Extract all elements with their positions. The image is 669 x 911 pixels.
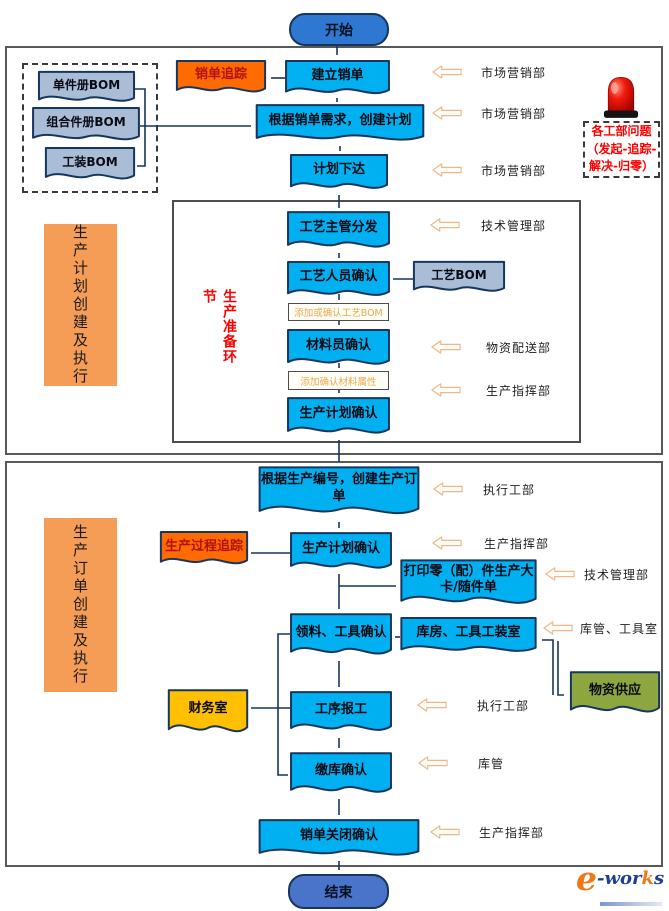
node-sales-order-tracking: 销单追踪 bbox=[176, 60, 266, 98]
node-pick-confirm: 领料、工具确认 bbox=[290, 613, 392, 662]
logo-text: s bbox=[654, 868, 664, 889]
issue-note-line: 各工部问题 bbox=[591, 123, 651, 140]
dept-label-storekeeper-toolroom: 库管、工具室 bbox=[580, 620, 658, 637]
node-craft-dispatch: 工艺主管分发 bbox=[287, 211, 390, 254]
prep-phase-label: 生产准备环节 bbox=[206, 289, 232, 373]
logo-letter-e: e bbox=[576, 859, 597, 898]
node-bom-tooling: 工装BOM bbox=[45, 147, 135, 185]
band-plan-phase-label: 生产计划创建及执行 bbox=[70, 224, 91, 386]
dept-label-tech-mgmt-2: 技术管理部 bbox=[584, 566, 649, 583]
dept-arrow-icon bbox=[432, 65, 462, 79]
dept-arrow-icon bbox=[418, 756, 448, 770]
dept-label-marketing-1: 市场营销部 bbox=[481, 64, 546, 81]
dept-label-prod-command-2: 生产指挥部 bbox=[484, 535, 549, 552]
dept-label-prod-command-3: 生产指挥部 bbox=[479, 824, 544, 841]
node-close-confirm: 销单关闭确认 bbox=[258, 819, 420, 862]
dept-arrow-icon bbox=[545, 567, 575, 581]
dept-label-storekeeper: 库管 bbox=[478, 755, 504, 772]
logo-text: -wor bbox=[597, 868, 641, 889]
node-create-prod-order: 根据生产编号，创建生产订单 bbox=[258, 466, 420, 523]
node-bom-single: 单件册BOM bbox=[38, 71, 135, 107]
node-bom-combo: 组合件册BOM bbox=[32, 107, 140, 146]
band-order-phase: 生产订单创建及执行 bbox=[44, 518, 117, 692]
dept-arrow-icon bbox=[417, 698, 447, 712]
flowchart-canvas: 开始 结束 生产计划创建及执行 生产订单创建及执行 生产准备环节 销单追踪 建立… bbox=[0, 0, 669, 911]
eworks-logo: e-works bbox=[576, 866, 664, 906]
dept-label-material-delivery: 物资配送部 bbox=[486, 339, 551, 356]
dept-arrow-icon bbox=[432, 163, 462, 177]
issue-note-line: （发起-追踪- bbox=[587, 141, 657, 158]
dept-label-marketing-2: 市场营销部 bbox=[481, 105, 546, 122]
alarm-icon bbox=[598, 72, 644, 119]
node-craft-confirm: 工艺人员确认 bbox=[287, 261, 390, 302]
node-create-sales-order: 建立销单 bbox=[285, 60, 390, 100]
end-node: 结束 bbox=[288, 874, 389, 909]
dept-arrow-icon bbox=[431, 383, 461, 397]
band-order-phase-label: 生产订单创建及执行 bbox=[70, 524, 91, 686]
node-plan-confirm: 生产计划确认 bbox=[287, 397, 390, 440]
issue-note-box: 各工部问题 （发起-追踪- 解决-归零） bbox=[583, 121, 660, 178]
node-stockin-confirm: 缴库确认 bbox=[290, 752, 392, 800]
dept-arrow-icon bbox=[430, 825, 460, 839]
node-supply: 物资供应 bbox=[570, 671, 660, 720]
node-print-card: 打印零（配）件生产大卡/随件单 bbox=[400, 559, 537, 612]
node-prod-plan-confirm: 生产计划确认 bbox=[290, 532, 392, 575]
node-process-tracking: 生产过程追踪 bbox=[160, 531, 248, 570]
node-material-confirm: 材料员确认 bbox=[287, 329, 390, 371]
dept-arrow-icon bbox=[430, 218, 460, 232]
node-create-plan: 根据销单需求，创建计划 bbox=[255, 104, 425, 147]
node-plan-release: 计划下达 bbox=[290, 154, 388, 195]
issue-note-line: 解决-归零） bbox=[589, 158, 654, 175]
dept-arrow-icon bbox=[433, 482, 463, 496]
note-add-craft-bom: 添加或确认工艺BOM bbox=[288, 303, 389, 321]
logo-letter-k: k bbox=[641, 868, 653, 889]
start-node: 开始 bbox=[289, 13, 389, 46]
note-add-material-attr: 添加确认材料属性 bbox=[288, 371, 389, 390]
node-warehouse-room: 库房、工具工装室 bbox=[400, 617, 537, 658]
logo-underline bbox=[600, 902, 662, 906]
band-plan-phase: 生产计划创建及执行 bbox=[44, 224, 117, 386]
node-finance: 财务室 bbox=[168, 689, 248, 740]
dept-label-prod-command-1: 生产指挥部 bbox=[486, 382, 551, 399]
dept-label-exec-dept-1: 执行工部 bbox=[483, 481, 535, 498]
node-process-report: 工序报工 bbox=[290, 691, 392, 738]
dept-arrow-icon bbox=[432, 106, 462, 120]
dept-label-tech-mgmt-1: 技术管理部 bbox=[481, 217, 546, 234]
dept-arrow-icon bbox=[432, 536, 462, 550]
dept-arrow-icon bbox=[543, 621, 573, 635]
dept-label-exec-dept-2: 执行工部 bbox=[477, 697, 529, 714]
dept-arrow-icon bbox=[431, 340, 461, 354]
dept-label-marketing-3: 市场营销部 bbox=[481, 162, 546, 179]
node-craft-bom: 工艺BOM bbox=[413, 261, 505, 297]
